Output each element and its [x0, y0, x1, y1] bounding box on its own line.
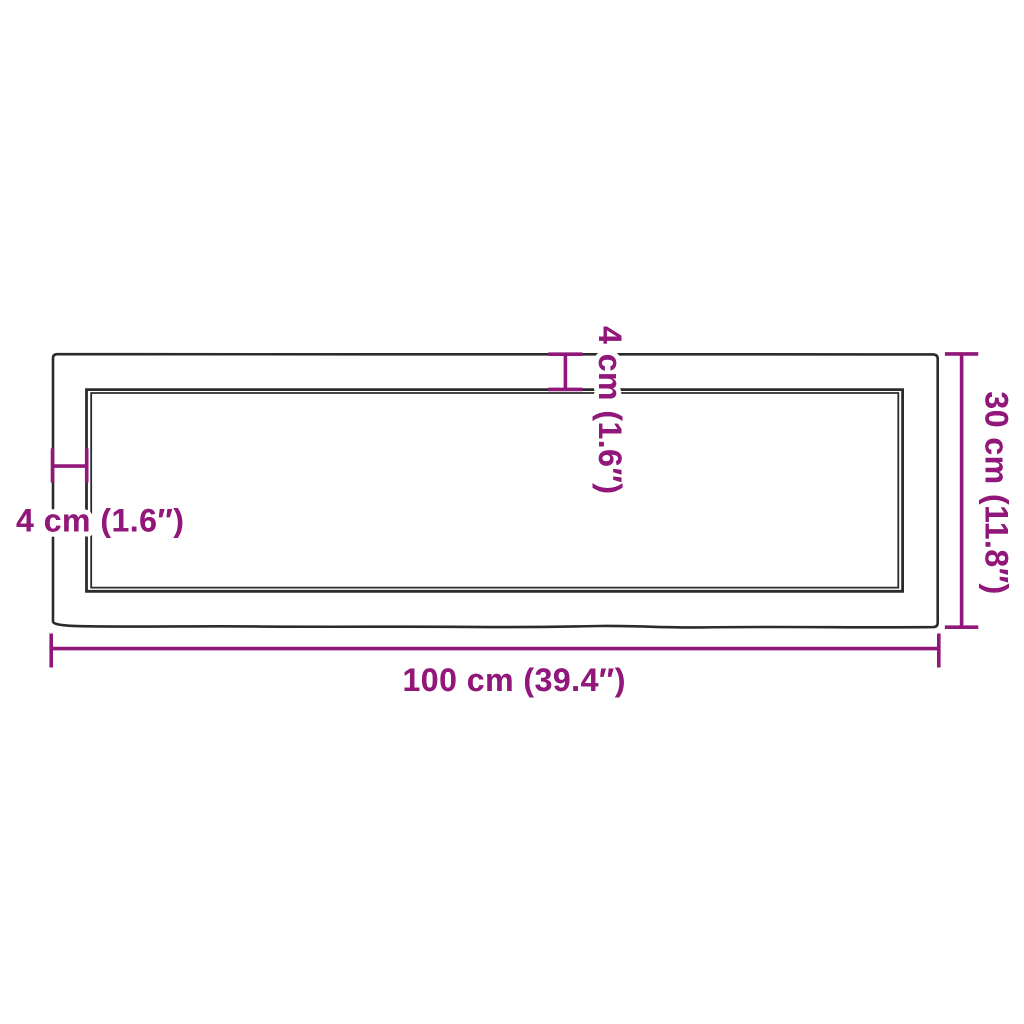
svg-text:30 cm (11.8″): 30 cm (11.8″) — [979, 391, 1015, 594]
svg-text:100 cm (39.4″): 100 cm (39.4″) — [403, 662, 626, 698]
svg-text:4 cm (1.6″): 4 cm (1.6″) — [16, 503, 184, 539]
svg-text:4 cm (1.6″): 4 cm (1.6″) — [592, 326, 628, 494]
